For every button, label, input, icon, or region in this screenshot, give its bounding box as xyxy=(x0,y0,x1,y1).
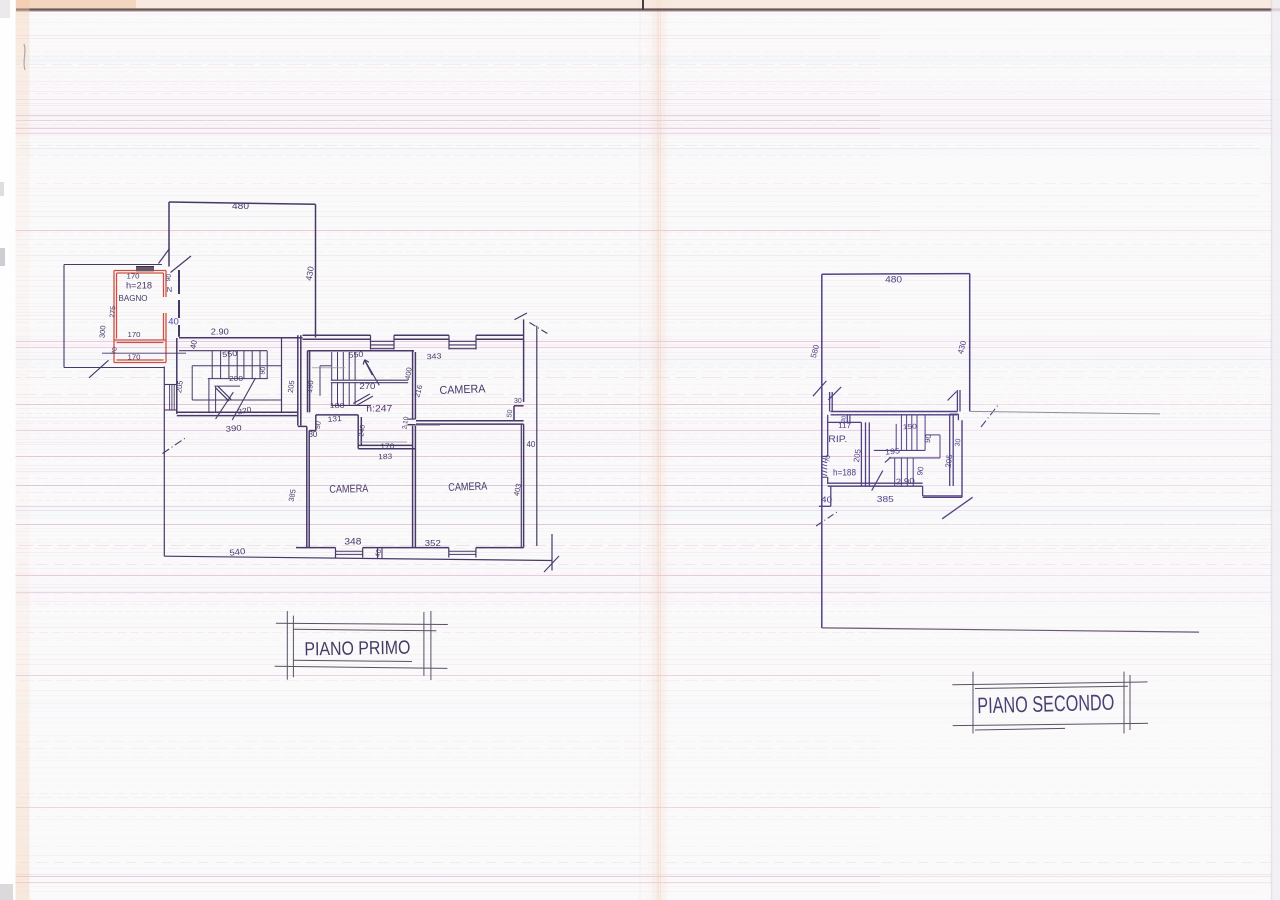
svg-text:90: 90 xyxy=(259,366,267,375)
svg-text:480: 480 xyxy=(885,274,902,284)
svg-text:183: 183 xyxy=(378,452,392,461)
svg-text:30: 30 xyxy=(308,430,317,439)
svg-text:h:247: h:247 xyxy=(366,403,392,414)
svg-text:40: 40 xyxy=(526,440,535,449)
svg-text:390: 390 xyxy=(225,423,242,433)
svg-text:117: 117 xyxy=(838,421,851,430)
svg-text:352: 352 xyxy=(425,538,441,548)
svg-text:385: 385 xyxy=(877,494,894,504)
svg-text:70: 70 xyxy=(824,454,832,463)
svg-text:205: 205 xyxy=(174,380,185,394)
svg-text:30: 30 xyxy=(514,398,522,405)
svg-text:205: 205 xyxy=(286,380,297,394)
svg-text:400: 400 xyxy=(403,367,414,381)
svg-text:200: 200 xyxy=(229,374,243,383)
svg-text:480: 480 xyxy=(232,201,249,211)
svg-text:180: 180 xyxy=(330,401,345,410)
svg-text:170: 170 xyxy=(380,441,394,450)
svg-text:CAMERA: CAMERA xyxy=(329,483,369,496)
svg-text:h=188: h=188 xyxy=(833,468,856,478)
svg-text:CAMERA: CAMERA xyxy=(439,383,486,397)
svg-text:50: 50 xyxy=(506,409,514,418)
svg-text:RIP.: RIP. xyxy=(828,434,847,445)
svg-text:2.90: 2.90 xyxy=(896,476,916,486)
svg-text:205: 205 xyxy=(852,448,863,463)
svg-text:343: 343 xyxy=(426,351,441,361)
svg-text:540: 540 xyxy=(229,546,246,558)
svg-text:348: 348 xyxy=(344,536,361,546)
svg-text:195: 195 xyxy=(885,446,901,456)
svg-text:170: 170 xyxy=(128,330,141,339)
svg-text:PIANO PRIMO: PIANO PRIMO xyxy=(304,638,410,661)
svg-text:270: 270 xyxy=(359,382,376,391)
svg-text:h=218: h=218 xyxy=(126,281,152,291)
svg-text:CAMERA: CAMERA xyxy=(448,481,488,494)
svg-text:190: 190 xyxy=(305,380,316,394)
svg-text:550: 550 xyxy=(348,350,364,360)
svg-text:150: 150 xyxy=(903,424,917,432)
svg-text:170: 170 xyxy=(127,272,140,281)
svg-text:2.90: 2.90 xyxy=(211,328,230,337)
svg-text:PIANO SECONDO: PIANO SECONDO xyxy=(977,690,1115,719)
svg-text:N: N xyxy=(167,285,172,294)
svg-text:275: 275 xyxy=(109,306,117,318)
svg-text:50: 50 xyxy=(315,421,323,430)
svg-text:BAGNO: BAGNO xyxy=(119,294,148,303)
svg-text:40: 40 xyxy=(168,317,179,328)
svg-text:170: 170 xyxy=(128,353,141,362)
svg-text:550: 550 xyxy=(222,349,238,360)
svg-text:300: 300 xyxy=(97,325,107,338)
svg-text:30: 30 xyxy=(954,438,962,447)
svg-text:131: 131 xyxy=(327,414,342,424)
